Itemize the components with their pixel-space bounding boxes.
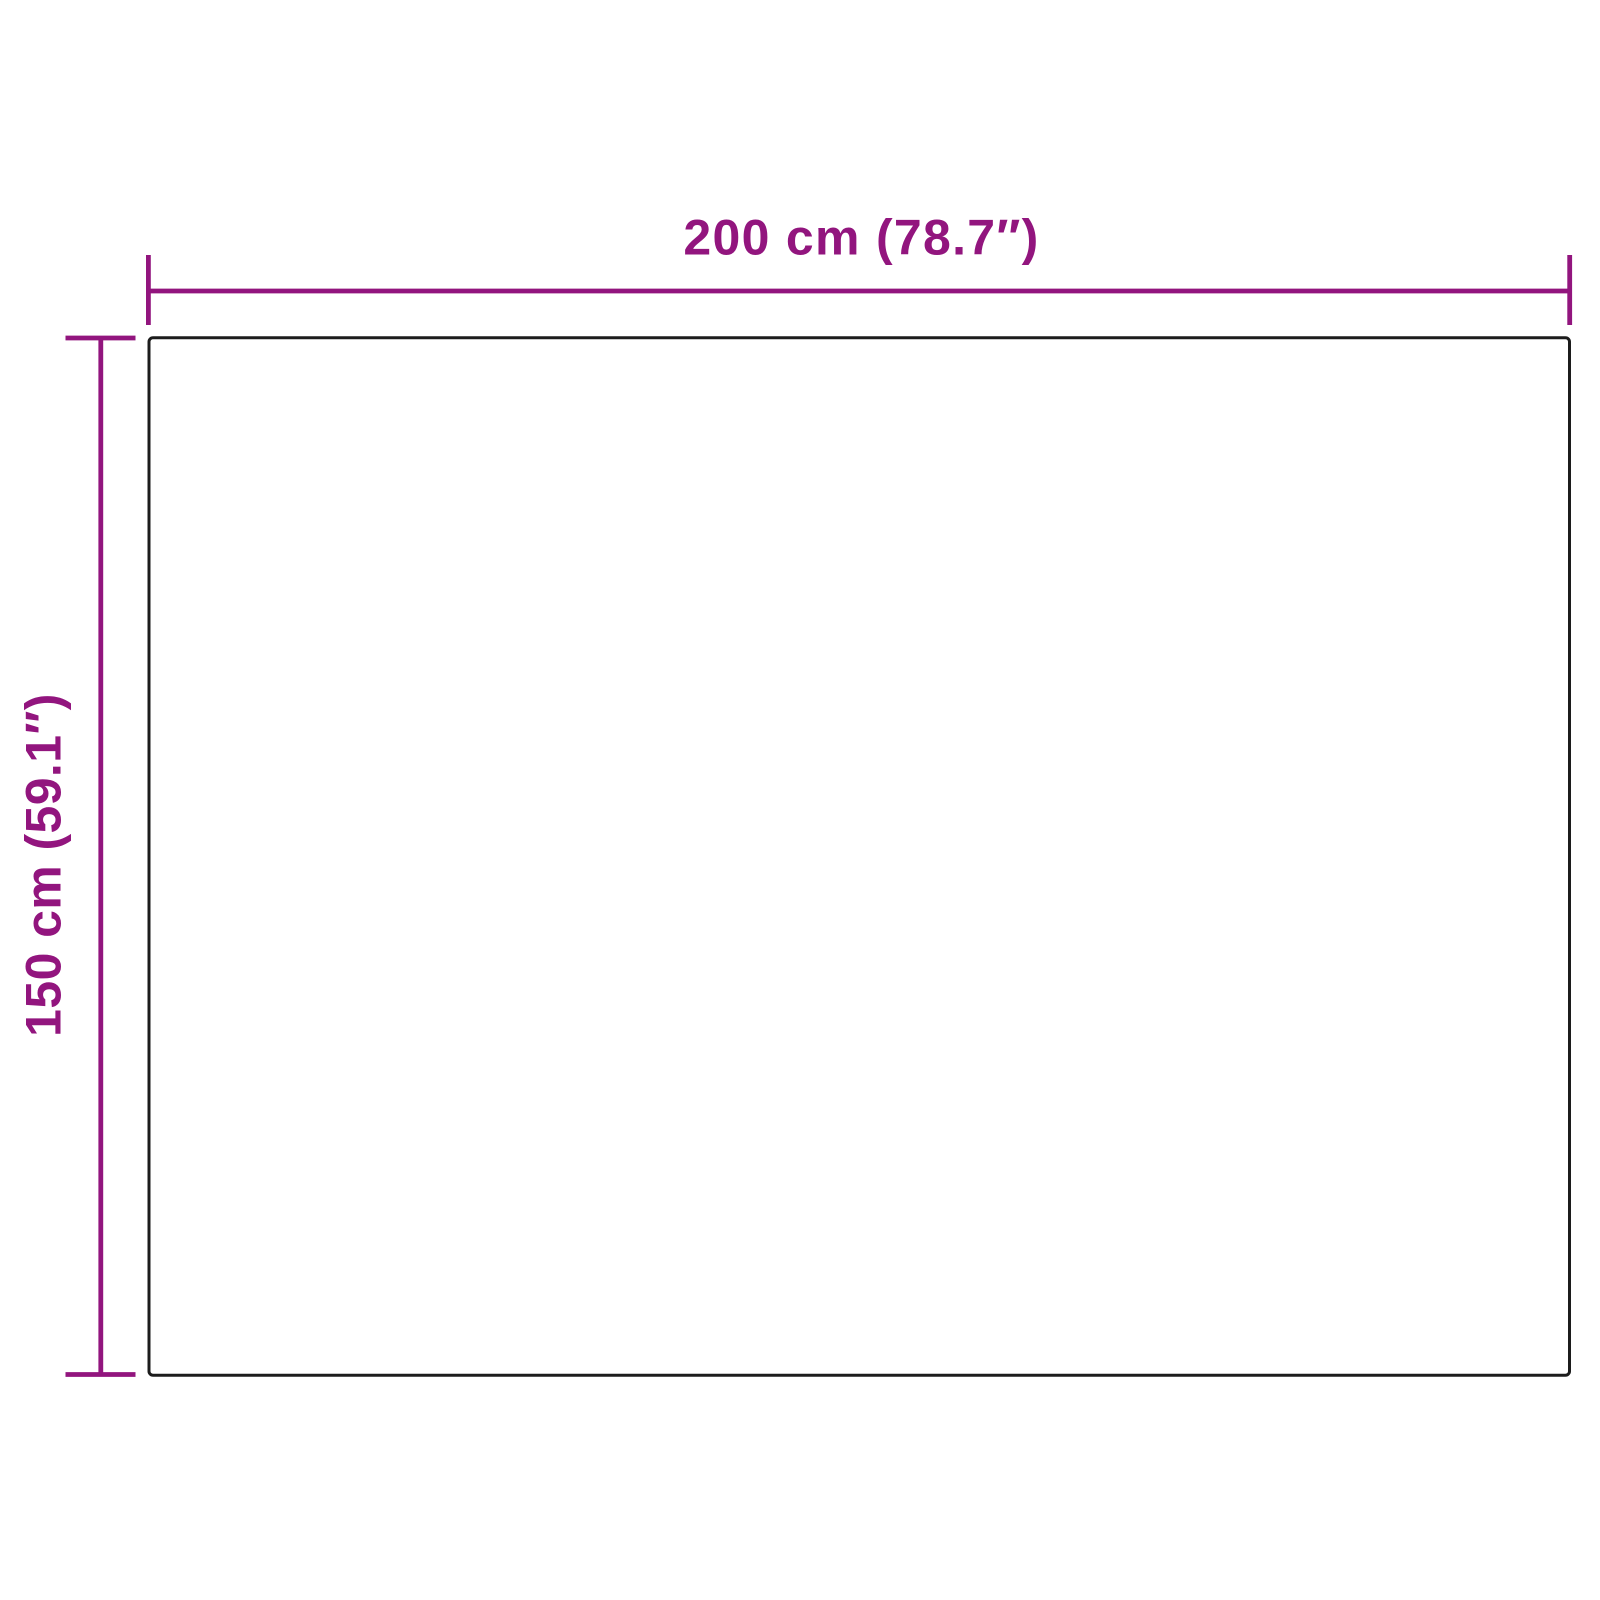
svg-text:150 cm (59.1″): 150 cm (59.1″) [15, 693, 71, 1037]
svg-text:200 cm (78.7″): 200 cm (78.7″) [683, 210, 1039, 266]
